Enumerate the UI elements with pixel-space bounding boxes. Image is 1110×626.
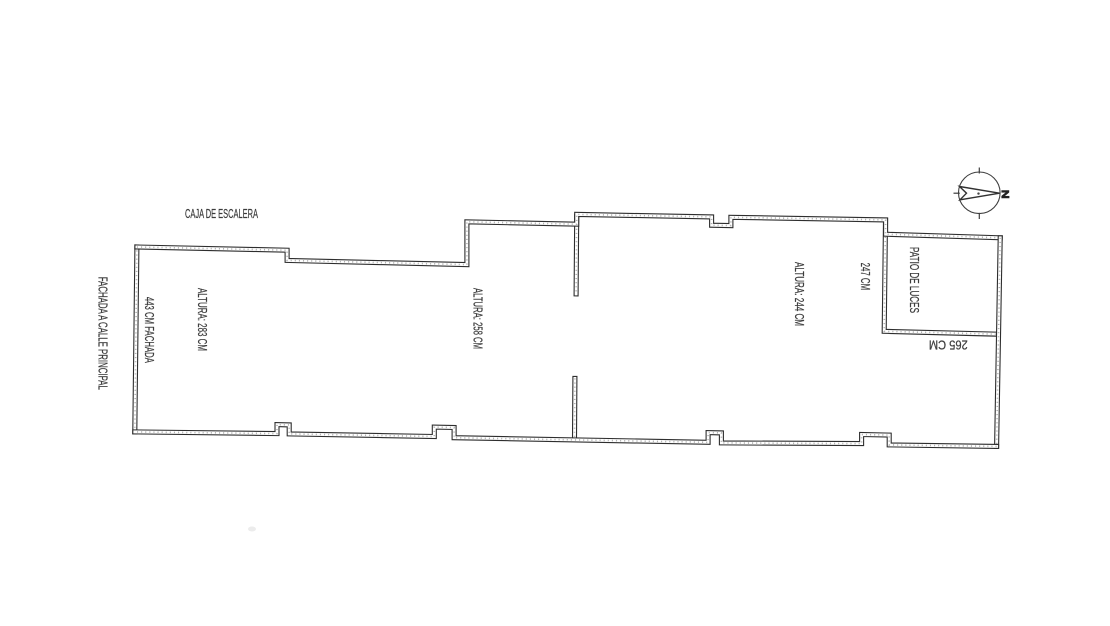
svg-text:CAJA DE ESCALERA: CAJA DE ESCALERA [185,207,258,221]
svg-text:ALTURA: 283 CM: ALTURA: 283 CM [195,288,209,351]
svg-text:443 CM FACHADA: 443 CM FACHADA [142,297,156,363]
svg-text:ALTURA: 258 CM: ALTURA: 258 CM [471,288,485,349]
svg-text:FACHADA A CALLE PRINCIPAL: FACHADA A CALLE PRINCIPAL [96,277,110,390]
svg-text:265 CM: 265 CM [929,338,968,352]
svg-text:PATIO DE LUCES: PATIO DE LUCES [907,247,921,313]
svg-text:247 CM: 247 CM [858,263,872,291]
svg-text:ALTURA: 244 CM: ALTURA: 244 CM [792,262,806,326]
